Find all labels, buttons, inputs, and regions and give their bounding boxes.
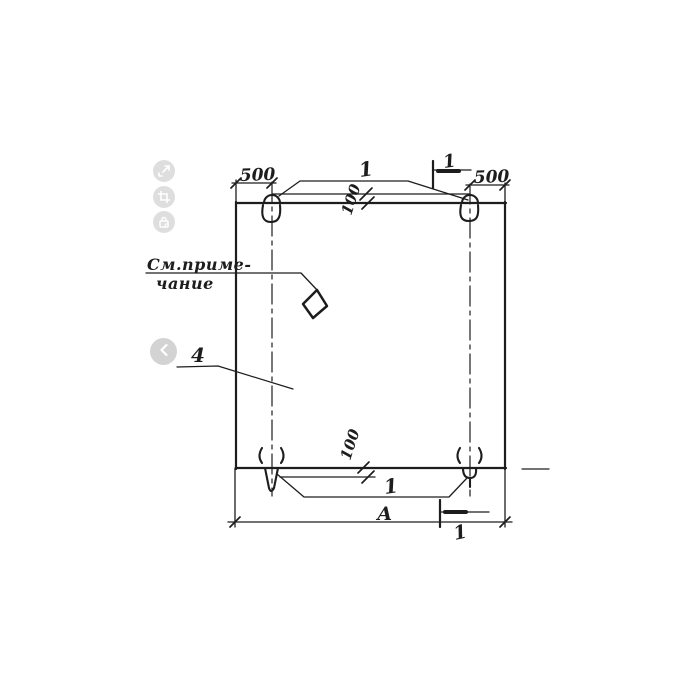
dim-100-bottom-label: 100 [337,426,364,462]
dim-100-top: 100 [338,181,374,217]
dim-100-bottom: 100 [337,426,374,483]
section-mark-bottom-label: 1 [451,521,469,545]
callout-panel-item-label: 4 [191,343,205,367]
note-line1: См.приме- [147,255,252,274]
dim-500-left-label: 500 [239,165,275,186]
section-mark-top: 1 [433,150,471,188]
dim-overall-width: А [228,503,512,527]
dim-overall-width-label: А [375,503,392,525]
lifting-loop-top-left [262,195,280,222]
dim-500-left: 500 [231,165,277,188]
image-viewer-canvas: 500 500 100 100 1 1 [0,0,700,700]
note-line2: чание [156,274,214,293]
callout-top-loops-label: 1 [357,156,374,182]
callout-bottom-loops-label: 1 [382,473,399,499]
marking-diamond [303,290,327,318]
dim-100-top-label: 100 [338,181,365,217]
panel-outline [236,202,506,469]
dim-500-right-label: 500 [473,167,509,188]
dim-500-right: 500 [465,167,510,190]
section-mark-top-label: 1 [442,150,457,173]
panel-technical-drawing: 500 500 100 100 1 1 [0,0,700,700]
